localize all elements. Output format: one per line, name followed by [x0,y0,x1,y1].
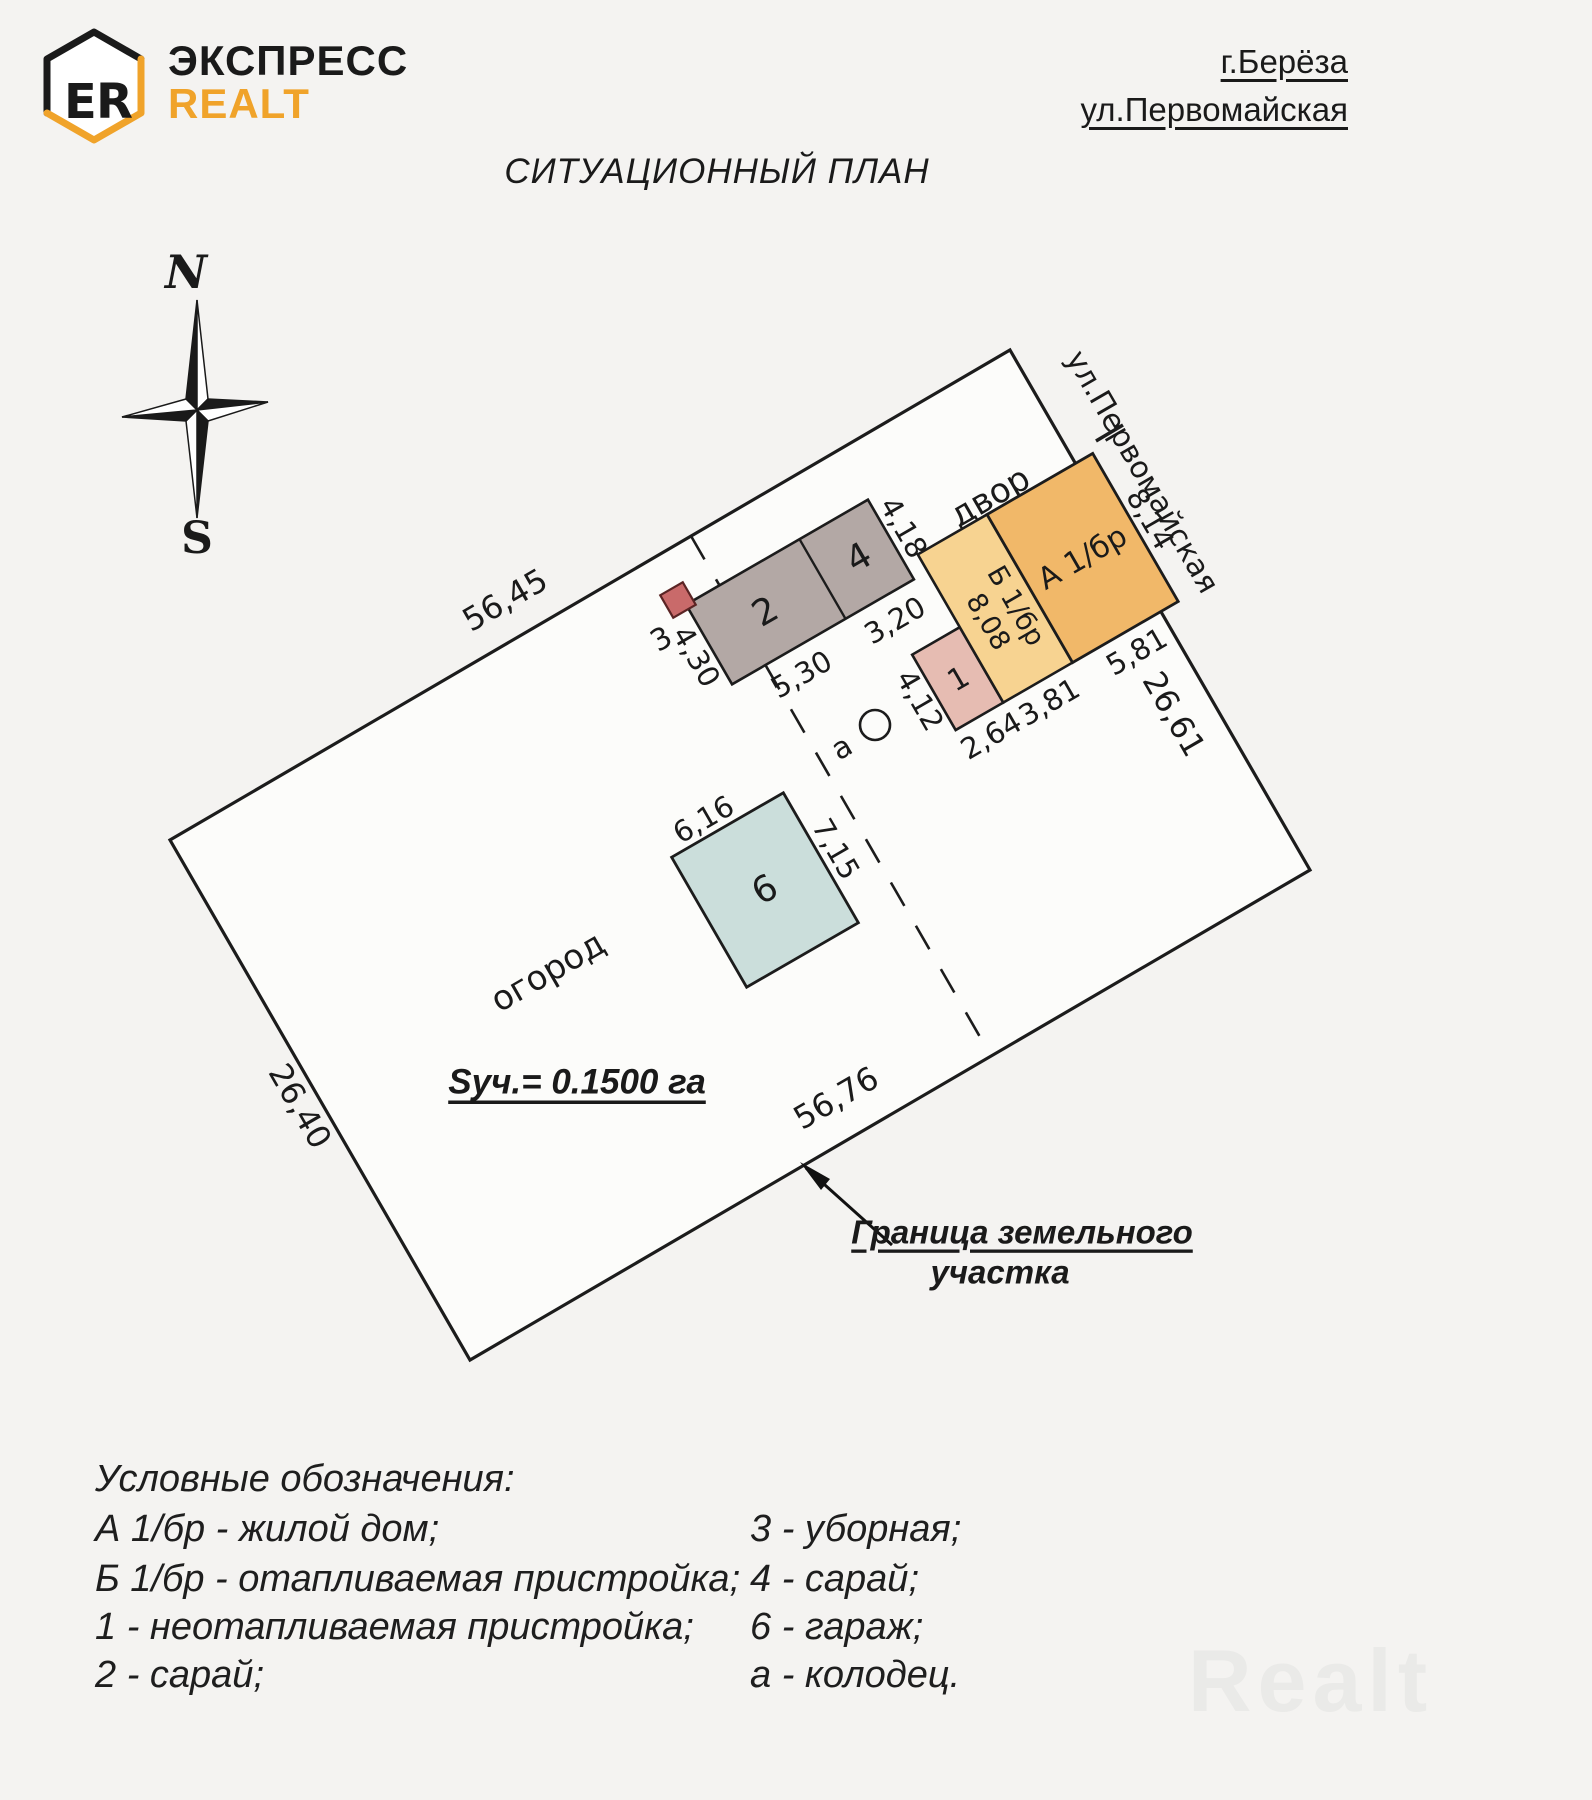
legend-title: Условные обозначения: [95,1458,515,1501]
boundary-note-line1: Граница земельного [851,1214,1193,1251]
boundary-note-line2: участка [928,1254,1069,1291]
compass-rose: N S [122,245,268,564]
compass-south-label: S [181,513,213,564]
legend-item-heated-annex: Б 1/бр - отапливаемая пристройка; [95,1558,740,1601]
compass-north-label: N [163,245,209,299]
legend-item-well: а - колодец. [750,1654,960,1697]
compass-n-black [186,300,197,410]
legend-item-garage: 6 - гараж; [750,1606,923,1649]
compass-n-white [197,300,208,410]
legend-item-shed2: 2 - сарай; [95,1654,264,1697]
legend-item-house: А 1/бр - жилой дом; [95,1508,439,1551]
legend-item-outhouse: 3 - уборная; [750,1508,961,1551]
realt-watermark: Realt [1188,1630,1433,1732]
compass-s-black [197,410,208,518]
scanned-plan-page: { "header": { "logo": {"letter_e": "E", … [0,0,1592,1800]
plot-area-label: Sуч.= 0.1500 га [448,1063,706,1102]
compass-s-white [186,410,197,518]
legend-item-unheated-annex: 1 - неотапливаемая пристройка; [95,1606,694,1649]
well-circle [860,710,890,740]
legend-item-shed4: 4 - сарай; [750,1558,919,1601]
boundary-callout: Граница земельного участка [800,1162,1193,1291]
